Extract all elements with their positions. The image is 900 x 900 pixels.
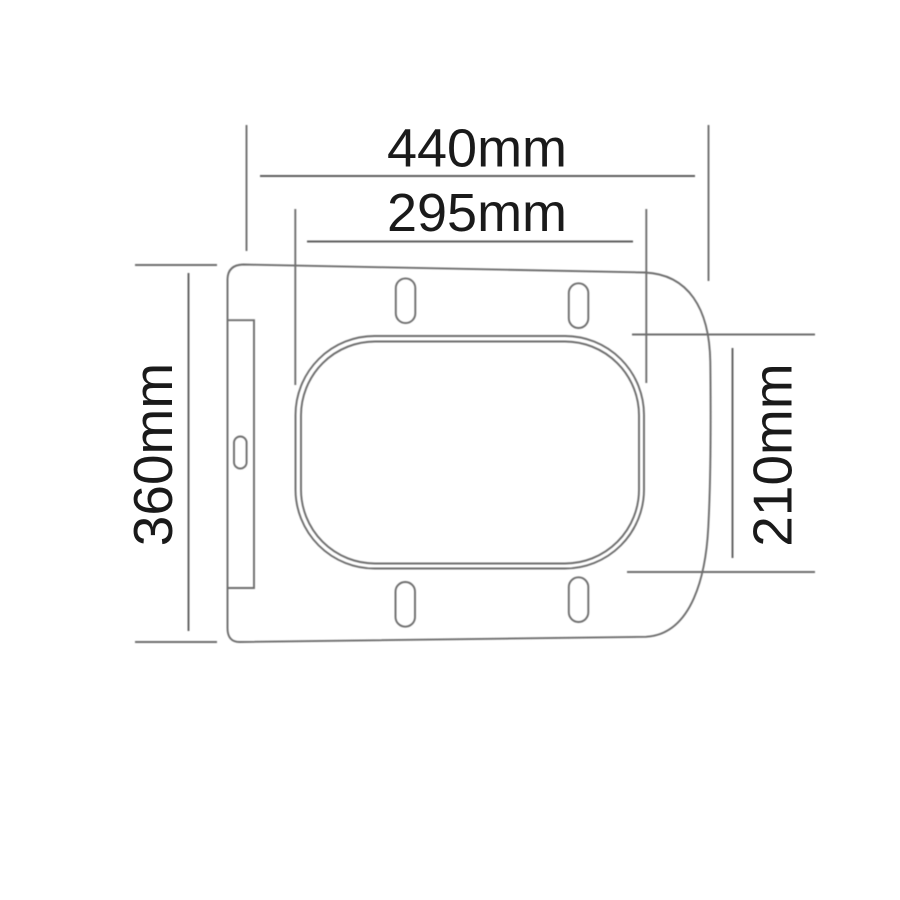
svg-text:440mm: 440mm [387, 119, 567, 179]
svg-text:360mm: 360mm [122, 363, 184, 546]
svg-text:210mm: 210mm [742, 363, 804, 546]
svg-text:295mm: 295mm [387, 183, 567, 243]
